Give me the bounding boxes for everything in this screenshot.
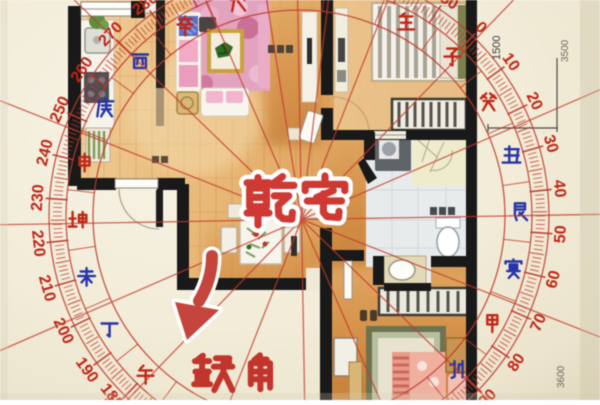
svg-text:220: 220	[28, 229, 48, 257]
svg-text:230: 230	[29, 184, 48, 212]
svg-text:40: 40	[550, 179, 569, 199]
svg-text:1500: 1500	[491, 36, 503, 60]
svg-text:3600: 3600	[556, 365, 567, 388]
svg-text:50: 50	[552, 225, 570, 244]
svg-text:3500: 3500	[560, 39, 571, 62]
